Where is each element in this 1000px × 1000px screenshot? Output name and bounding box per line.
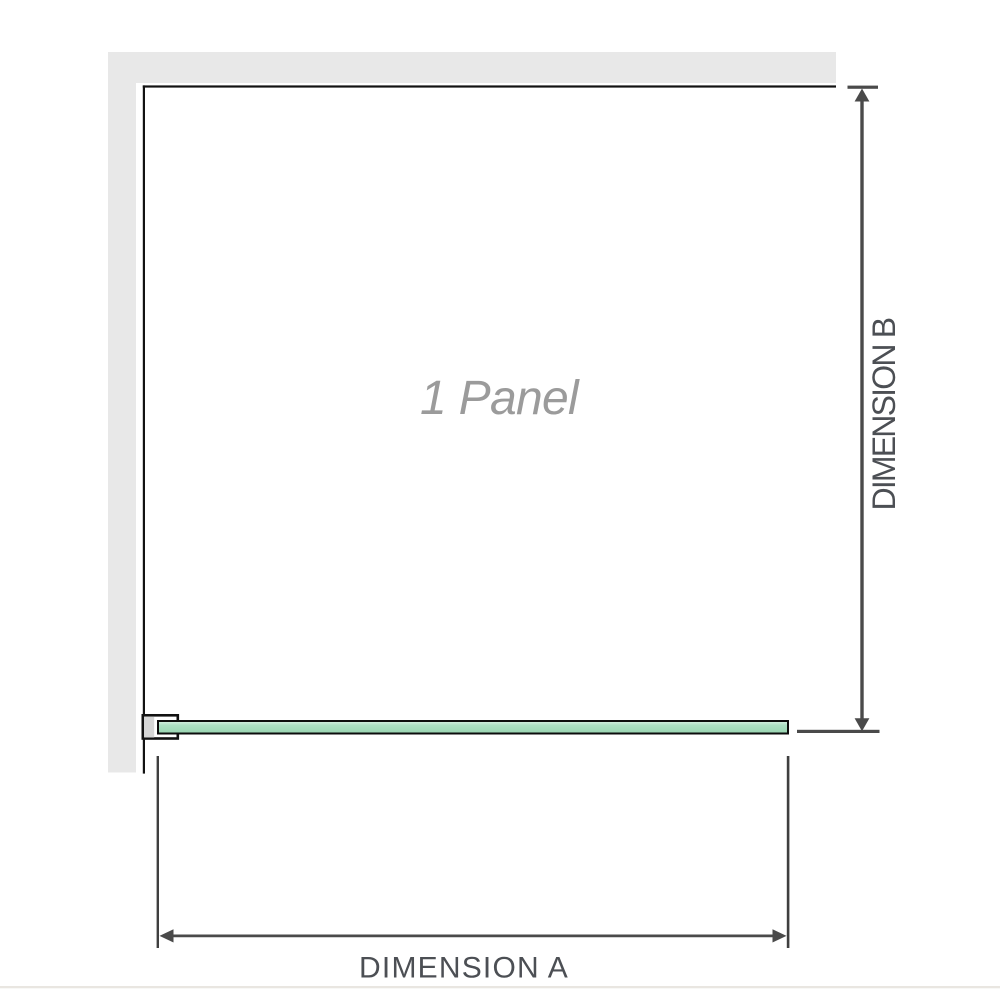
svg-text:1 Panel: 1 Panel bbox=[420, 372, 580, 425]
svg-text:DIMENSION B: DIMENSION B bbox=[866, 318, 902, 510]
svg-text:DIMENSION A: DIMENSION A bbox=[359, 952, 569, 985]
